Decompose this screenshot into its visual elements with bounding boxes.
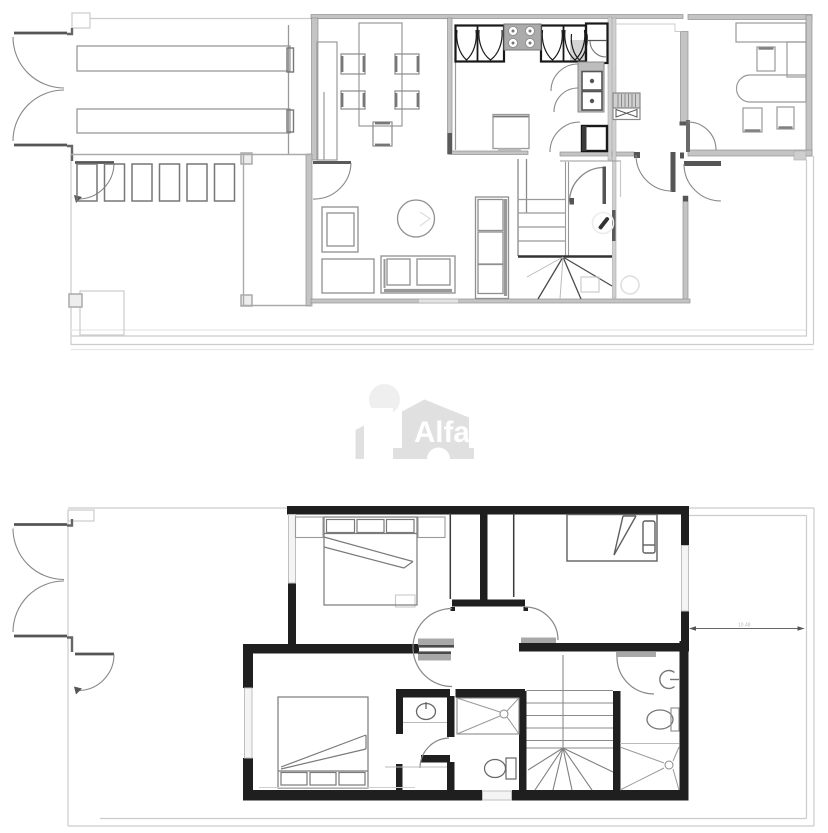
- svg-text:Alfa: Alfa: [414, 416, 470, 449]
- svg-text:10.48: 10.48: [738, 623, 751, 629]
